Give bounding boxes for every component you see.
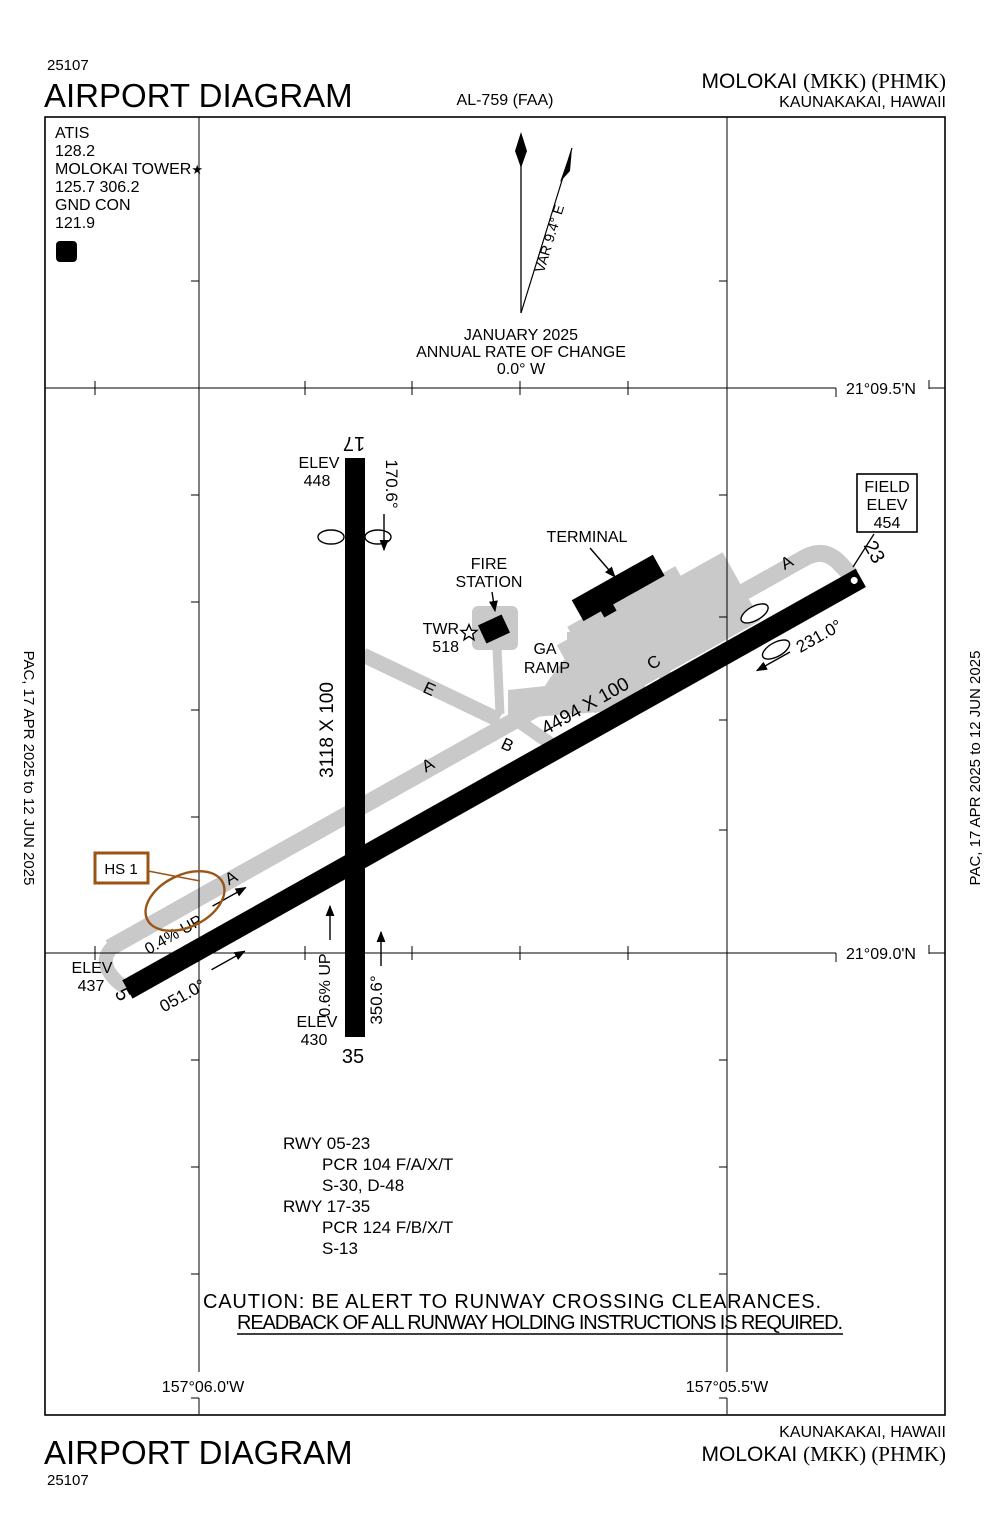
caution-line1: CAUTION: BE ALERT TO RUNWAY CROSSING CLE… (203, 1291, 821, 1313)
airport-diagram-chart: 4494 X 100 0.4% UP 051.0° 231.0° 5 23 A … (0, 0, 1000, 1533)
rwy-data-line2: PCR 104 F/A/X/T (322, 1155, 453, 1174)
graticule-labels: 21°09.5'N 21°09.0'N 157°06.0'W 157°05.5'… (162, 381, 916, 1396)
elev-437-label: ELEV (72, 960, 113, 977)
terminal-arrow (590, 548, 615, 577)
elev-430-value: 430 (301, 1032, 328, 1049)
runway-17-heading: 170.6° (382, 459, 401, 508)
clearance-delivery-letter: D (61, 244, 72, 261)
rwy-data-line4: RWY 17-35 (283, 1197, 370, 1216)
magnetic-north-half-arrowhead (560, 148, 572, 182)
caution-note: CAUTION: BE ALERT TO RUNWAY CROSSING CLE… (203, 1291, 843, 1334)
heading-05-arrow (212, 951, 245, 970)
field-elev-line2: ELEV (867, 497, 908, 514)
chart-number-top: 25107 (47, 57, 89, 74)
airport-name-top: MOLOKAI (MKK) (PHMK) (702, 69, 946, 93)
hotspot-label: HS 1 (104, 861, 137, 878)
ground-frequency: 121.9 (55, 215, 95, 232)
latitude-top-label: 21°09.5'N (846, 381, 916, 398)
elev-448-label: ELEV (299, 455, 340, 472)
fire-station-taxilane (497, 648, 500, 714)
longitude-left-label: 157°06.0'W (162, 1379, 245, 1396)
field-elev-line1: FIELD (864, 479, 909, 496)
airport-city-bottom: KAUNAKAKAI, HAWAII (779, 1424, 946, 1441)
runway-1735-dimensions: 3118 X 100 (317, 682, 338, 778)
chart-title-top: AIRPORT DIAGRAM (44, 77, 353, 114)
longitude-right-label: 157°05.5'W (686, 1379, 769, 1396)
rwy-data-line1: RWY 05-23 (283, 1134, 370, 1153)
true-north-arrowhead (515, 132, 527, 168)
annual-rate-value: 0.0° W (497, 361, 546, 378)
chart-border (45, 117, 945, 1415)
part-time-star-icon: ★ (191, 162, 203, 177)
runway-1735-slope: 0.6% UP (317, 953, 334, 1016)
procedure-id: AL-759 (FAA) (457, 92, 554, 109)
variation-date: JANUARY 2025 (464, 327, 578, 344)
chart-number-bottom: 25107 (47, 1472, 89, 1489)
rwy-data-line6: S-13 (322, 1239, 358, 1258)
runway-end-35-number: 35 (342, 1046, 364, 1068)
runway-data-block: RWY 05-23 PCR 104 F/A/X/T S-30, D-48 RWY… (283, 1134, 453, 1258)
tower-label: MOLOKAI TOWER★ (55, 161, 203, 178)
magnetic-variation-label: VAR 9.4° E (531, 203, 567, 275)
effective-dates-right: PAC, 17 APR 2025 to 12 JUN 2025 (967, 651, 984, 886)
oval-marker-17-west (318, 530, 344, 544)
field-elev-line3: 454 (874, 515, 901, 532)
effective-dates-left: PAC, 17 APR 2025 to 12 JUN 2025 (20, 651, 37, 886)
communications-box: ATIS 128.2 MOLOKAI TOWER★ 125.7 306.2 GN… (55, 125, 203, 262)
caution-line2: READBACK OF ALL RUNWAY HOLDING INSTRUCTI… (237, 1312, 843, 1334)
tower-site-elev: 518 (432, 639, 459, 656)
oval-marker-17-east (365, 530, 391, 544)
terminal-label: TERMINAL (547, 529, 628, 546)
graticule (45, 117, 945, 1414)
runway-end-23-number: 23 (859, 537, 889, 567)
airport-city-top: KAUNAKAKAI, HAWAII (779, 94, 946, 111)
elev-437-value: 437 (78, 978, 105, 995)
atis-frequency: 128.2 (55, 143, 95, 160)
tower-site-label: TWR (423, 621, 459, 638)
elev-448-value: 448 (304, 473, 331, 490)
annual-rate-label: ANNUAL RATE OF CHANGE (416, 344, 626, 361)
rwy-data-line5: PCR 124 F/B/X/T (322, 1218, 453, 1237)
airport-name-bottom: MOLOKAI (MKK) (PHMK) (702, 1442, 946, 1466)
runway-end-17-number: 17 (343, 432, 365, 454)
fire-station-label-1: FIRE (471, 556, 507, 573)
tower-frequencies: 125.7 306.2 (55, 179, 140, 196)
atis-label: ATIS (55, 125, 89, 142)
fire-station-label-2: STATION (456, 574, 523, 591)
ga-ramp-label-2: RAMP (524, 660, 570, 677)
runway-35-heading: 350.6° (367, 975, 386, 1024)
chart-header: 25107 AIRPORT DIAGRAM AL-759 (FAA) MOLOK… (44, 57, 946, 114)
ga-ramp-label-1: GA (533, 641, 556, 658)
airport-diagram-page: 4494 X 100 0.4% UP 051.0° 231.0° 5 23 A … (0, 0, 1000, 1533)
compass-rose: VAR 9.4° E JANUARY 2025 ANNUAL RATE OF C… (416, 132, 626, 378)
chart-title-bottom: AIRPORT DIAGRAM (44, 1434, 353, 1471)
runway-17-35 (345, 458, 365, 1037)
elev-430-label: ELEV (297, 1014, 338, 1031)
chart-footer: AIRPORT DIAGRAM 25107 KAUNAKAKAI, HAWAII… (44, 1424, 946, 1489)
latitude-bottom-label: 21°09.0'N (846, 946, 916, 963)
runway-05-heading: 051.0° (156, 975, 208, 1016)
ground-control-label: GND CON (55, 197, 131, 214)
rwy-data-line3: S-30, D-48 (322, 1176, 404, 1195)
